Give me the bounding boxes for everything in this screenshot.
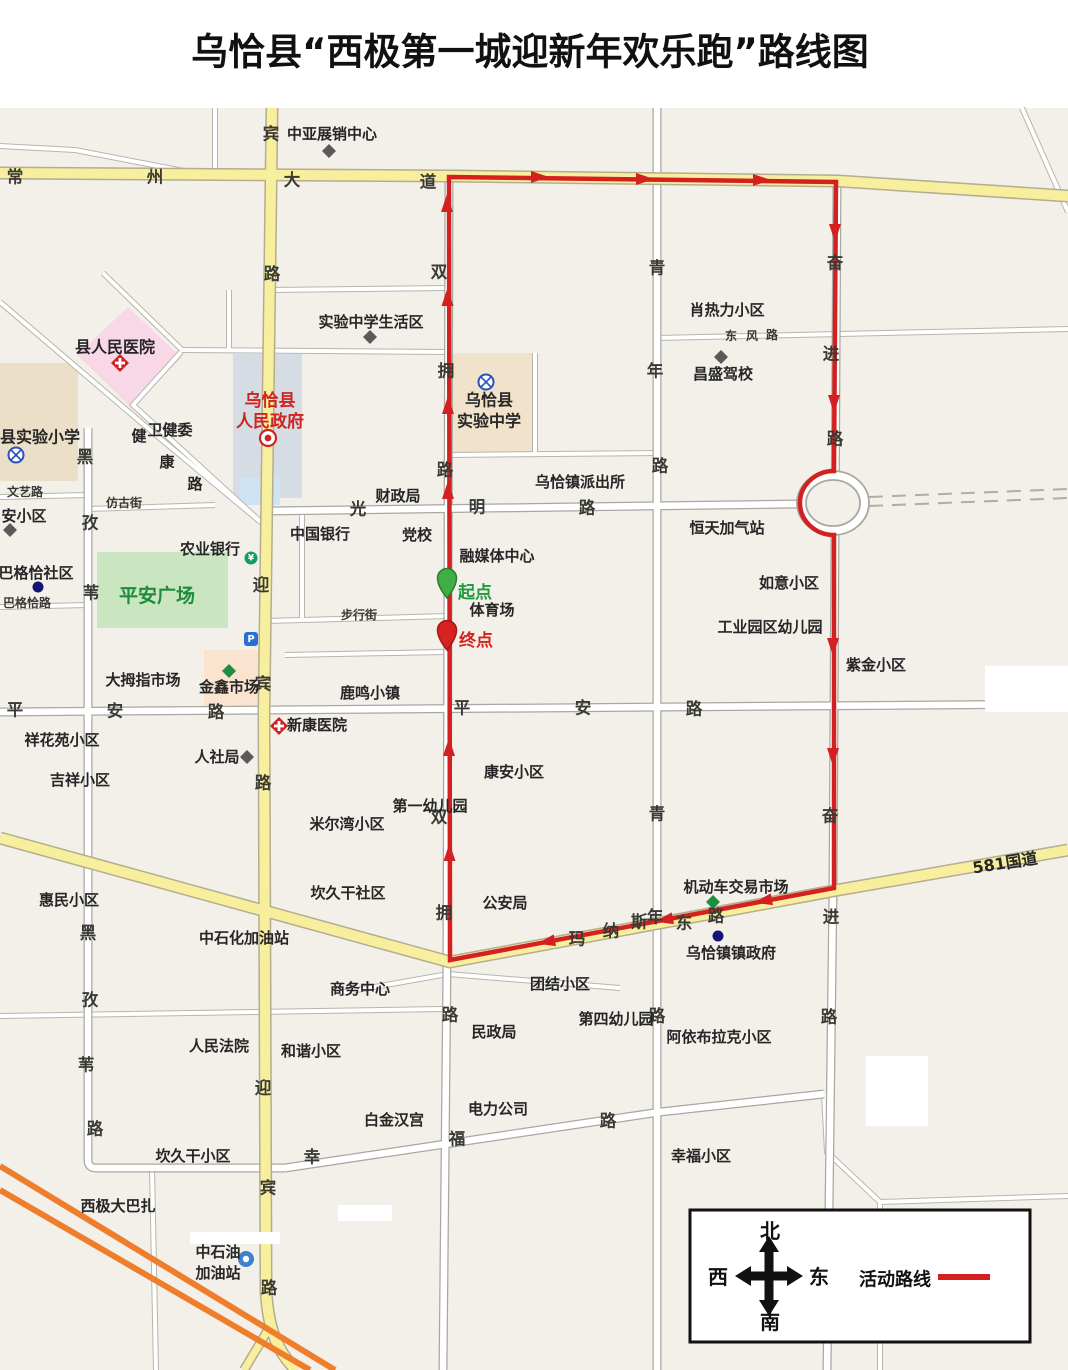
route-map-page: ¥ P 常 州 大 道 宾 路 迎 宾 路 迎 宾 路 双 拥 路 双 拥 路 … <box>0 0 1068 1370</box>
svg-text:P: P <box>247 634 254 645</box>
road-label: 路 <box>827 429 844 449</box>
road-label: 路 <box>442 1005 459 1025</box>
parking-icon: P <box>244 632 258 646</box>
road-label: 路 <box>708 906 725 926</box>
compass-west-label: 西 <box>708 1265 728 1289</box>
road-label: 风 <box>746 329 758 343</box>
place-label: 财政局 <box>375 487 420 505</box>
road-label: 东 <box>725 328 737 343</box>
place-label: 加油站 <box>194 1264 240 1282</box>
road-label: 路 <box>652 456 669 476</box>
road-label: 路 <box>686 699 703 719</box>
place-label: 惠民小区 <box>39 891 99 909</box>
road-label: 安 <box>107 701 124 721</box>
road-label: 光 <box>349 499 367 519</box>
place-label: 西极大巴扎 <box>80 1197 155 1215</box>
place-label: 乌恰镇镇政府 <box>686 944 776 962</box>
road-label: 路 <box>255 773 272 793</box>
road-label: 路 <box>579 498 596 518</box>
agri-bank-icon: ¥ <box>245 552 258 565</box>
road-label: 黑 <box>77 448 94 467</box>
road-label: 明 <box>469 498 486 517</box>
road-label: 青 <box>649 258 666 278</box>
compass-east-label: 东 <box>809 1265 829 1289</box>
road-label: 文艺路 <box>7 484 44 499</box>
place-label: 幸福小区 <box>671 1147 731 1165</box>
road-label: 路 <box>261 1278 278 1298</box>
road-label: 孜 <box>82 991 99 1010</box>
road-label: 青 <box>649 804 666 824</box>
road-label: 步行街 <box>341 607 377 622</box>
road-label: 路 <box>187 475 203 493</box>
place-label: 县人民医院 <box>75 338 155 357</box>
place-label: 恒天加气站 <box>689 519 764 537</box>
place-label: 人社局 <box>194 748 239 766</box>
place-label: 坎久干社区 <box>310 884 385 902</box>
map-background <box>0 108 1068 1370</box>
end-label: 终点 <box>459 630 493 651</box>
road-label: 安 <box>575 698 592 718</box>
place-label: 民政局 <box>471 1023 516 1041</box>
road-label: 路 <box>264 264 281 284</box>
road-label: 黑 <box>80 924 97 943</box>
road-label: 苇 <box>78 1055 95 1075</box>
place-label: 乌恰县 <box>465 391 513 410</box>
road-label: 常 <box>7 167 24 187</box>
road-label: 巴格恰路 <box>3 595 52 610</box>
place-label: 商务中心 <box>330 980 390 998</box>
road-label: 年 <box>647 907 664 927</box>
pond <box>240 478 280 505</box>
place-label: 团结小区 <box>530 975 590 993</box>
road-label: 拥 <box>436 903 453 923</box>
road-label: 宾 <box>263 124 280 144</box>
road-label: 平 <box>7 701 24 720</box>
place-label: 电力公司 <box>468 1100 528 1118</box>
place-label: 阿依布拉克小区 <box>666 1028 771 1046</box>
road-label: 路 <box>87 1119 104 1139</box>
road-label: 幸 <box>304 1147 321 1167</box>
place-label: 白金汉宫 <box>364 1111 424 1129</box>
road-label: 斯 <box>631 912 648 932</box>
place-label: 鹿鸣小镇 <box>340 684 400 702</box>
start-label: 起点 <box>457 582 492 603</box>
place-label: 中亚展销中心 <box>287 125 377 143</box>
place-label: 祥花苑小区 <box>24 731 99 749</box>
place-label: 县实验小学 <box>0 428 80 447</box>
place-label: 中国银行 <box>290 525 350 543</box>
place-label: 新康医院 <box>287 716 347 734</box>
place-label: 人民法院 <box>189 1037 249 1055</box>
road-label: 迎 <box>255 1078 272 1098</box>
road-label: 年 <box>647 361 664 381</box>
place-label: 农业银行 <box>179 540 240 558</box>
legend-route-line <box>938 1274 990 1280</box>
compass-south-label: 南 <box>760 1310 780 1334</box>
road-label: 仿古街 <box>106 495 142 510</box>
road-label: 迎 <box>253 575 270 595</box>
road-label: 孜 <box>82 514 99 533</box>
bagecha-community-icon <box>33 582 44 593</box>
road-label: 进 <box>823 345 840 364</box>
place-label: 平安广场 <box>119 584 195 607</box>
place-label: 巴格恰社区 <box>0 564 74 582</box>
road-label: 拥 <box>438 361 455 381</box>
place-label: 乌恰镇派出所 <box>535 473 625 491</box>
place-label: 乌恰县 <box>245 390 296 411</box>
road-label: 纳 <box>603 921 620 941</box>
road-label: 路 <box>766 327 779 342</box>
place-label: 实验中学生活区 <box>318 313 423 331</box>
place-label: 吉祥小区 <box>50 771 110 789</box>
place-label: 中石油 <box>195 1243 240 1261</box>
middle-school-icon <box>479 375 494 390</box>
place-label: 昌盛驾校 <box>693 365 754 383</box>
road-label: 路 <box>600 1111 617 1131</box>
road-label: 苇 <box>83 583 100 603</box>
place-label: 公安局 <box>482 894 527 912</box>
road-label: 州 <box>146 168 164 187</box>
road-label: 东 <box>676 913 693 933</box>
road-label: 康 <box>159 453 175 471</box>
place-label: 中石化加油站 <box>199 929 289 947</box>
legend-route-label: 活动路线 <box>859 1269 931 1291</box>
road-label: 福 <box>448 1129 466 1149</box>
page-title: 乌恰县“西极第一城迎新年欢乐跑”路线图 <box>191 31 869 74</box>
road-label: 道 <box>420 172 437 192</box>
place-label: 安小区 <box>1 507 46 525</box>
road-label: 宾 <box>260 1178 277 1198</box>
place-label: 金鑫市场 <box>198 678 259 696</box>
legend: 北 南 西 东 活动路线 <box>690 1210 1030 1342</box>
road-label: 路 <box>821 1007 838 1027</box>
place-label: 卫健委 <box>147 421 192 439</box>
place-label: 如意小区 <box>759 574 819 592</box>
place-label: 坎久干小区 <box>155 1147 230 1165</box>
place-label: 机动车交易市场 <box>683 878 788 896</box>
road-label: 进 <box>823 908 840 927</box>
road-label: 双 <box>431 263 448 282</box>
road-label: 大 <box>284 170 301 190</box>
place-label: 体育场 <box>469 601 514 619</box>
road-label: 路 <box>208 702 225 722</box>
primary-school-block <box>0 363 78 481</box>
place-label: 第四幼儿园 <box>578 1010 653 1028</box>
place-label: 大拇指市场 <box>105 671 180 689</box>
place-label: 米尔湾小区 <box>309 815 384 833</box>
road-label: 平 <box>454 699 471 718</box>
place-label: 融媒体中心 <box>459 547 534 565</box>
road-label: 路 <box>437 460 454 480</box>
svg-text:¥: ¥ <box>248 554 255 564</box>
road-label: 奋 <box>826 253 844 273</box>
compass-north-label: 北 <box>760 1219 780 1243</box>
road-label: 奋 <box>821 806 839 826</box>
place-label: 党校 <box>402 526 433 544</box>
place-label: 肖热力小区 <box>689 301 764 319</box>
government-icon <box>260 430 276 446</box>
place-label: 和谐小区 <box>281 1042 341 1060</box>
place-label: 人民政府 <box>236 411 304 432</box>
place-label: 第一幼儿园 <box>392 797 467 815</box>
road-label: 健 <box>131 427 146 445</box>
road-label: 玛 <box>569 930 586 949</box>
place-label: 实验中学 <box>457 412 521 431</box>
place-label: 工业园区幼儿园 <box>717 618 822 636</box>
map-canvas: ¥ P 常 州 大 道 宾 路 迎 宾 路 迎 宾 路 双 拥 路 双 拥 路 … <box>0 0 1068 1370</box>
primary-school-icon <box>9 448 24 463</box>
place-label: 紫金小区 <box>846 656 906 674</box>
town-government-icon <box>713 931 724 942</box>
place-label: 康安小区 <box>484 763 544 781</box>
